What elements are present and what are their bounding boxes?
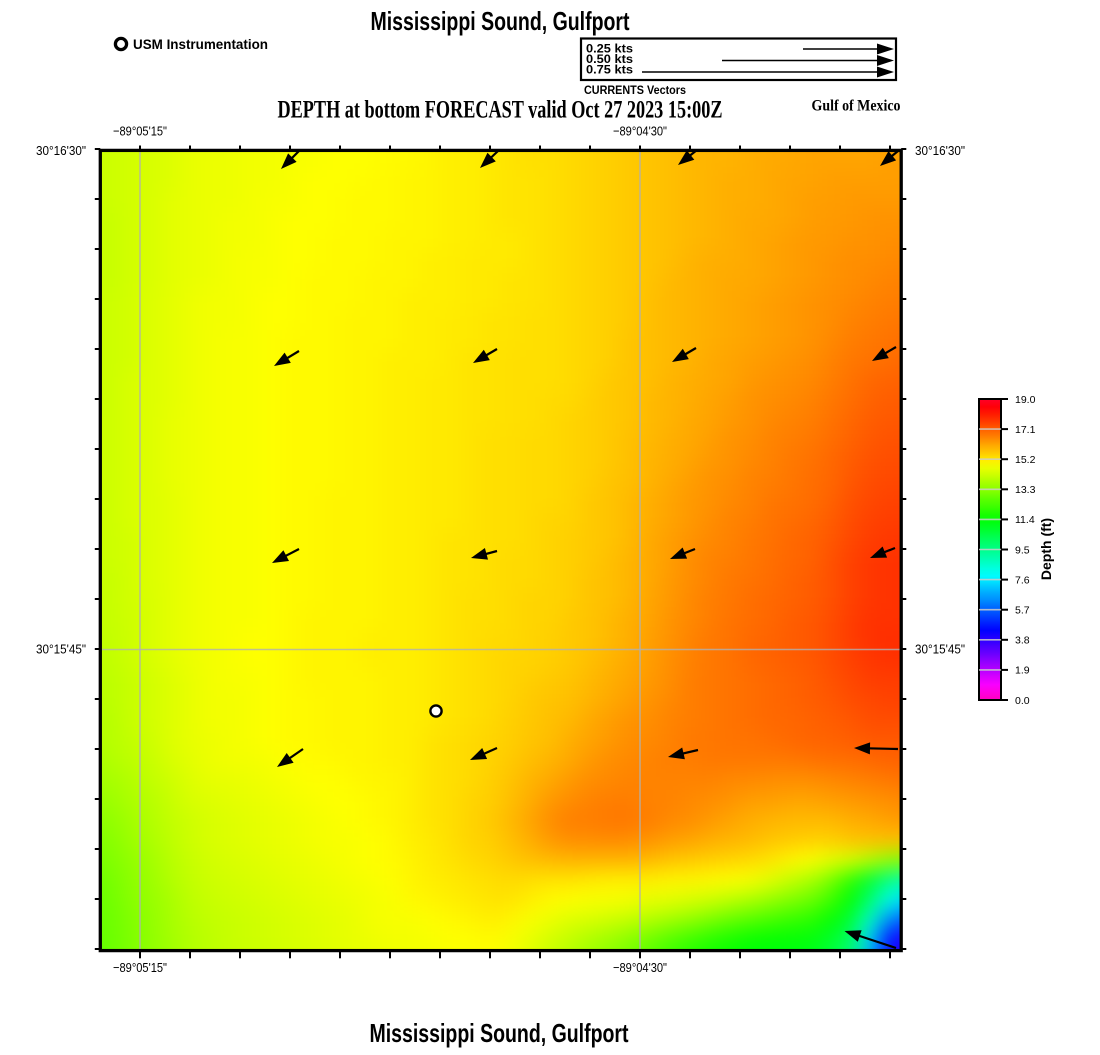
svg-text:30°16'30": 30°16'30" xyxy=(915,143,965,158)
svg-text:30°15'45": 30°15'45" xyxy=(36,642,86,657)
svg-text:0.75 kts: 0.75 kts xyxy=(586,65,633,77)
svg-text:Depth (ft): Depth (ft) xyxy=(1038,518,1054,580)
svg-text:30°15'45": 30°15'45" xyxy=(915,642,965,657)
svg-text:7.6: 7.6 xyxy=(1015,574,1030,586)
svg-text:5.7: 5.7 xyxy=(1015,605,1030,617)
svg-text:3.8: 3.8 xyxy=(1015,635,1030,647)
svg-text:USM Instrumentation: USM Instrumentation xyxy=(133,36,268,52)
svg-text:15.2: 15.2 xyxy=(1015,454,1036,466)
svg-text:1.9: 1.9 xyxy=(1015,665,1030,677)
svg-text:Mississippi Sound, Gulfport: Mississippi Sound, Gulfport xyxy=(371,6,630,36)
svg-text:−89°05'15": −89°05'15" xyxy=(113,960,167,975)
svg-text:DEPTH at bottom FORECAST valid: DEPTH at bottom FORECAST valid Oct 27 20… xyxy=(278,97,723,124)
svg-text:Mississippi Sound, Gulfport: Mississippi Sound, Gulfport xyxy=(370,1018,629,1048)
svg-text:11.4: 11.4 xyxy=(1015,514,1035,526)
svg-text:−89°04'30": −89°04'30" xyxy=(613,124,667,139)
svg-text:13.3: 13.3 xyxy=(1015,484,1036,496)
svg-text:19.0: 19.0 xyxy=(1015,394,1036,406)
svg-text:9.5: 9.5 xyxy=(1015,544,1030,556)
svg-text:−89°04'30": −89°04'30" xyxy=(613,960,667,975)
svg-text:30°16'30": 30°16'30" xyxy=(36,143,86,158)
svg-text:17.1: 17.1 xyxy=(1015,424,1036,436)
svg-text:−89°05'15": −89°05'15" xyxy=(113,124,167,139)
svg-text:Gulf of Mexico: Gulf of Mexico xyxy=(812,98,901,115)
svg-text:0.0: 0.0 xyxy=(1015,695,1030,707)
svg-text:CURRENTS Vectors: CURRENTS Vectors xyxy=(584,83,686,97)
